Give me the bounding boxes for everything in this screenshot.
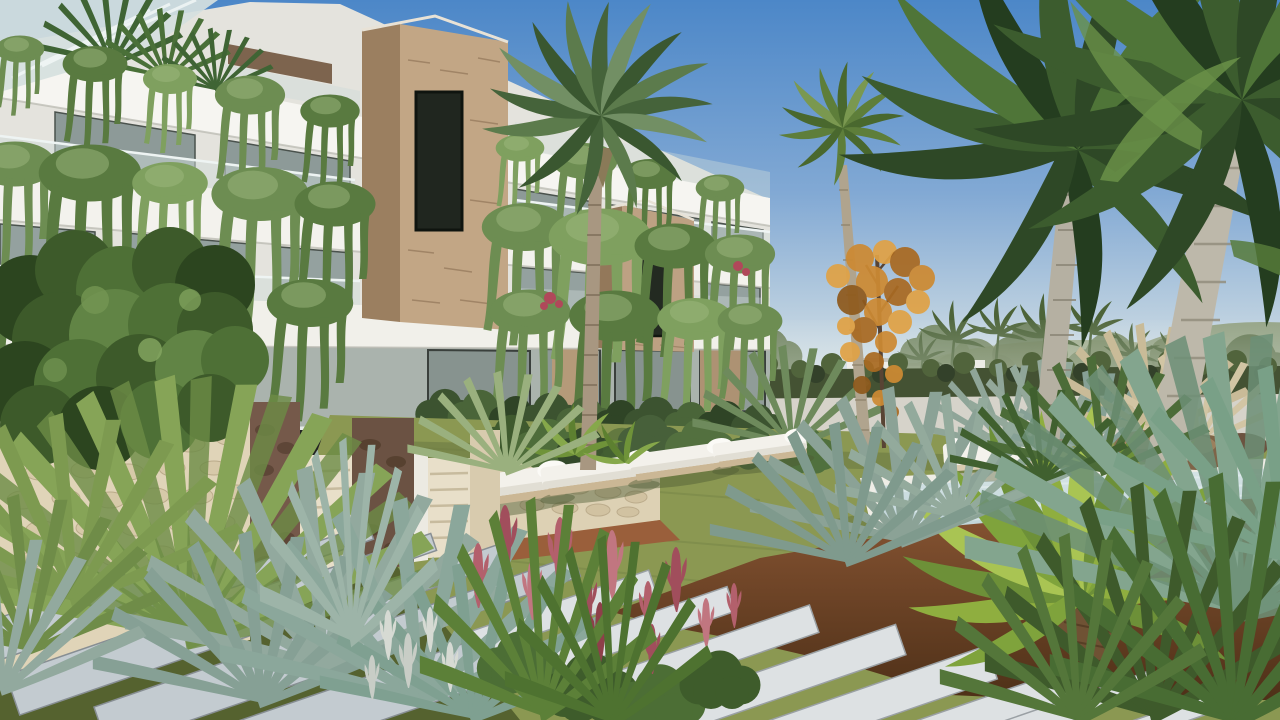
stone-tower-1 [362, 16, 508, 330]
architectural-render-scene [0, 0, 1280, 720]
tower-window [416, 92, 462, 230]
